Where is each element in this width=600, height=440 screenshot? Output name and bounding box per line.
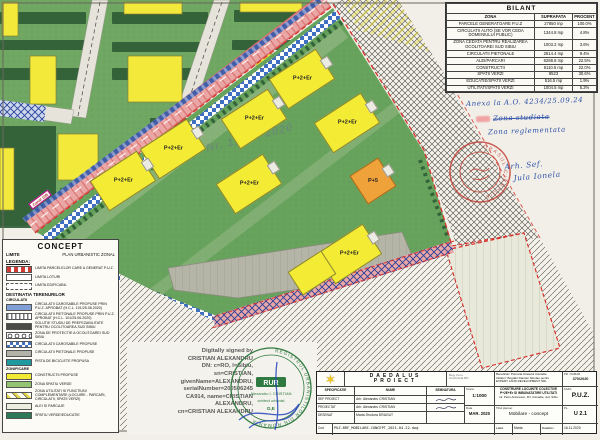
legend-item: ZONA UTILITATI SI FUNCTIUNI COMPLEMENTAR… <box>6 390 115 402</box>
row-proiectat: PROIECTAT <box>317 404 355 412</box>
svg-text:REGISTRUL URBANISTILOR DIN ROM: REGISTRUL URBANISTILOR DIN ROMANIA <box>251 348 311 428</box>
swatch-ocolitoare-studiu <box>6 323 32 330</box>
concept-legend-panel: CONCEPT LIMITE PLAN URBANISTIC ZONAL LEG… <box>2 239 119 433</box>
column-header-procent: PROCENT <box>573 14 597 21</box>
title-block: ✶ DAEDALUS PROIECT Reg. Com.Cod Fiscal R… <box>316 371 597 434</box>
building-label: P+2+Er <box>245 116 264 122</box>
drawing-filename: PUZ-BRF_MOBILARE-CONCEPT_2021.04.22.dwg <box>333 424 495 435</box>
company-registration: Reg. Com.Cod Fiscal RO <box>447 372 495 387</box>
legend-limite-label: LIMITE <box>6 252 20 257</box>
digital-signature-block: Digitally signed byCRISTIAN ALEXANDRU DN… <box>127 342 317 434</box>
date-cell: Data MAR. 2020 <box>465 406 495 424</box>
legend-item: PISTA DE BICICLETE PROPUSA <box>6 359 115 366</box>
rur-stamp: REGISTRUL URBANISTILOR DIN ROMANIA RUR A… <box>227 344 315 432</box>
project-number-cell: PR. NUMAR 370/2020 <box>563 372 598 387</box>
table-row: EDUCATIE/SPATII VERZI516.5 mp1.9% <box>447 78 597 85</box>
swatch-carosabile-propuse <box>6 341 32 348</box>
legend-item: CIRCULATII PIETONALE PROPUSE <box>6 350 115 357</box>
swatch-alei-parcaje <box>6 403 32 410</box>
building-label: P+2+Er <box>338 120 357 126</box>
column-header-suprafata: SUPRAFATA <box>535 14 573 21</box>
rur-categories: D,E <box>267 406 275 411</box>
building-label: P+2+Er <box>164 146 183 152</box>
header-semnatura: SEMNATURA <box>427 387 465 396</box>
legend-item: CONSTRUCTII PROPUSE <box>6 373 115 380</box>
swatch-spatiu-verde <box>6 381 32 388</box>
plansa-title-cell: Titlul plansei: Mobilare - concept <box>495 406 563 424</box>
rur-name: Alexandru I. CRISTIAN <box>250 391 291 396</box>
swatch-carosabile-aprobat <box>6 304 32 311</box>
building-label: P+2+Er <box>340 251 359 257</box>
scale-cell: Scara: 1:1000 <box>465 387 495 406</box>
round-stamp-municipal: ORASUL CISNADIE <box>448 140 512 204</box>
swatch-limita-loturi <box>6 274 32 281</box>
header-specificatie: SPECIFICATIE <box>317 387 355 396</box>
legend-item: SOLUTIE STUDIU DE PREFEZABILITATE PENTRU… <box>6 322 115 330</box>
column-header-zona: ZONA <box>447 14 535 21</box>
signature-scribble <box>427 412 465 424</box>
building-label: P+2+Er <box>114 178 133 184</box>
signature-scribble <box>427 396 465 404</box>
legend-item: LIMITA EDIFICABIL <box>6 283 115 290</box>
datarev-value: 16.11.2020 <box>563 424 598 435</box>
table-row: CONSTRUCTII6110.5 mp22.0% <box>447 65 597 72</box>
table-row: ALEI/PARCARI6288.8 mp22.5% <box>447 58 597 65</box>
company-name: DAEDALUS PROIECT <box>345 372 447 387</box>
legend-item: CIRCULATII CAROSABILE PROPUSE PRIN P.U.Z… <box>6 303 115 311</box>
swatch-limita-edificabil <box>6 283 32 290</box>
datarev-label: DataRev <box>541 424 563 435</box>
rur-role: arhitect urbanist <box>257 399 285 403</box>
legend-item: ALEI SI PARCAJE <box>6 403 115 410</box>
cod-label: Cod <box>317 424 333 435</box>
legend-section-destinatia: DESTINATIA TERENURILOR <box>6 292 115 297</box>
row-sef-proiect: SEF PROIECT <box>317 396 355 404</box>
legend-plan-label: PLAN URBANISTIC ZONAL <box>62 252 115 257</box>
swatch-verde-educatie <box>6 412 32 419</box>
legend-item: LIMITA LOTURI <box>6 274 115 281</box>
project-title-cell: CONSTRUIRE LOCUINTE COLECTIVE P+2E+Er SI… <box>495 387 563 406</box>
swatch-zona-protectie <box>6 332 32 339</box>
beneficiar-cell: Beneficiar: Primaria Orasului Cisnadie I… <box>495 372 563 387</box>
table-row: CIRCULATII AUTO (SE VOR CEDA DOMENIULUI … <box>447 28 597 40</box>
legend-subsection-circulatii: CIRCULATII <box>6 298 115 302</box>
swatch-utilitati <box>6 392 32 399</box>
legend-item: ZONA SPATIU VERDE <box>6 381 115 388</box>
legend-item: CIRCULATII CAROSABILE PROPUSE <box>6 341 115 348</box>
building-label: P+5 <box>368 178 378 184</box>
faza-cell: FAZA: P.U.Z. <box>563 387 598 406</box>
proiectat-name: Arh. Alexandru CRISTIAN <box>355 404 427 412</box>
table-row: PARCELE GENERATOARE P.U.Z27850 mp100.0% <box>447 21 597 28</box>
bilant-title: BILANT <box>447 4 597 14</box>
pink-highlight-swatch <box>476 116 490 122</box>
row-desenat: DESENAT <box>317 412 355 424</box>
header-nume: NUME <box>355 387 427 396</box>
laed-label: LaEd. <box>495 424 513 435</box>
swatch-pietonale-aprobat <box>6 313 32 320</box>
building-label: P+2+Er <box>293 76 312 82</box>
swatch-pietonale-propuse <box>6 350 32 357</box>
desenat-name: Maria-Teodora DRAGUT <box>355 412 427 424</box>
bilant-table: BILANT ZONA SUPRAFATA PROCENT PARCELE GE… <box>445 2 598 93</box>
legend-legenda-label: LEGENDA: <box>6 259 115 264</box>
plansa-number-cell: PL. U 2.1 <box>563 406 598 424</box>
rur-ring-text: REGISTRUL URBANISTILOR DIN ROMANIA <box>251 348 311 428</box>
legend-subsection-zonificare: ZONIFICARE <box>6 367 115 371</box>
sef-proiect-name: Arh. Alexandru CRISTIAN <box>355 396 427 404</box>
legend-item: LIMITA PARCELELOR CARE A GENERAT P.U.Z. <box>6 266 115 273</box>
table-row: SPATII VERZI852330.6% <box>447 71 597 78</box>
legend-title: CONCEPT <box>6 242 115 251</box>
daedalus-logo: ✶ <box>317 372 345 387</box>
legend-item: SPATIU VERDE/EDUCATIE <box>6 412 115 419</box>
swatch-constructii <box>6 373 32 380</box>
table-row: ZONA CEDATA PENTRU REALIZAREA OCOLITOARE… <box>447 39 597 51</box>
puz-drawing-sheet: Nr. 1119 / 2020 Canal 10B P+2+Er P+2+Er … <box>0 0 600 440</box>
legend-item: CIRCULATII PIETONALE PROPUSE PRIN P.U.Z.… <box>6 313 115 321</box>
signature-scribble <box>427 404 465 412</box>
table-row: CIRCULATII PIETONALE2614.4 mp9.4% <box>447 51 597 58</box>
swatch-limita-puz <box>6 266 32 273</box>
laed-value: Maria <box>513 424 541 435</box>
swatch-pista-biciclete <box>6 359 32 366</box>
table-row: UTILITATI/SPATII VERZI1004.5 mp5.2% <box>447 85 597 92</box>
building-label: P+2+Er <box>240 181 259 187</box>
legend-item: ZONA DE PROTECTIE A OCOLITOAREI SUD SIBI… <box>6 332 115 340</box>
